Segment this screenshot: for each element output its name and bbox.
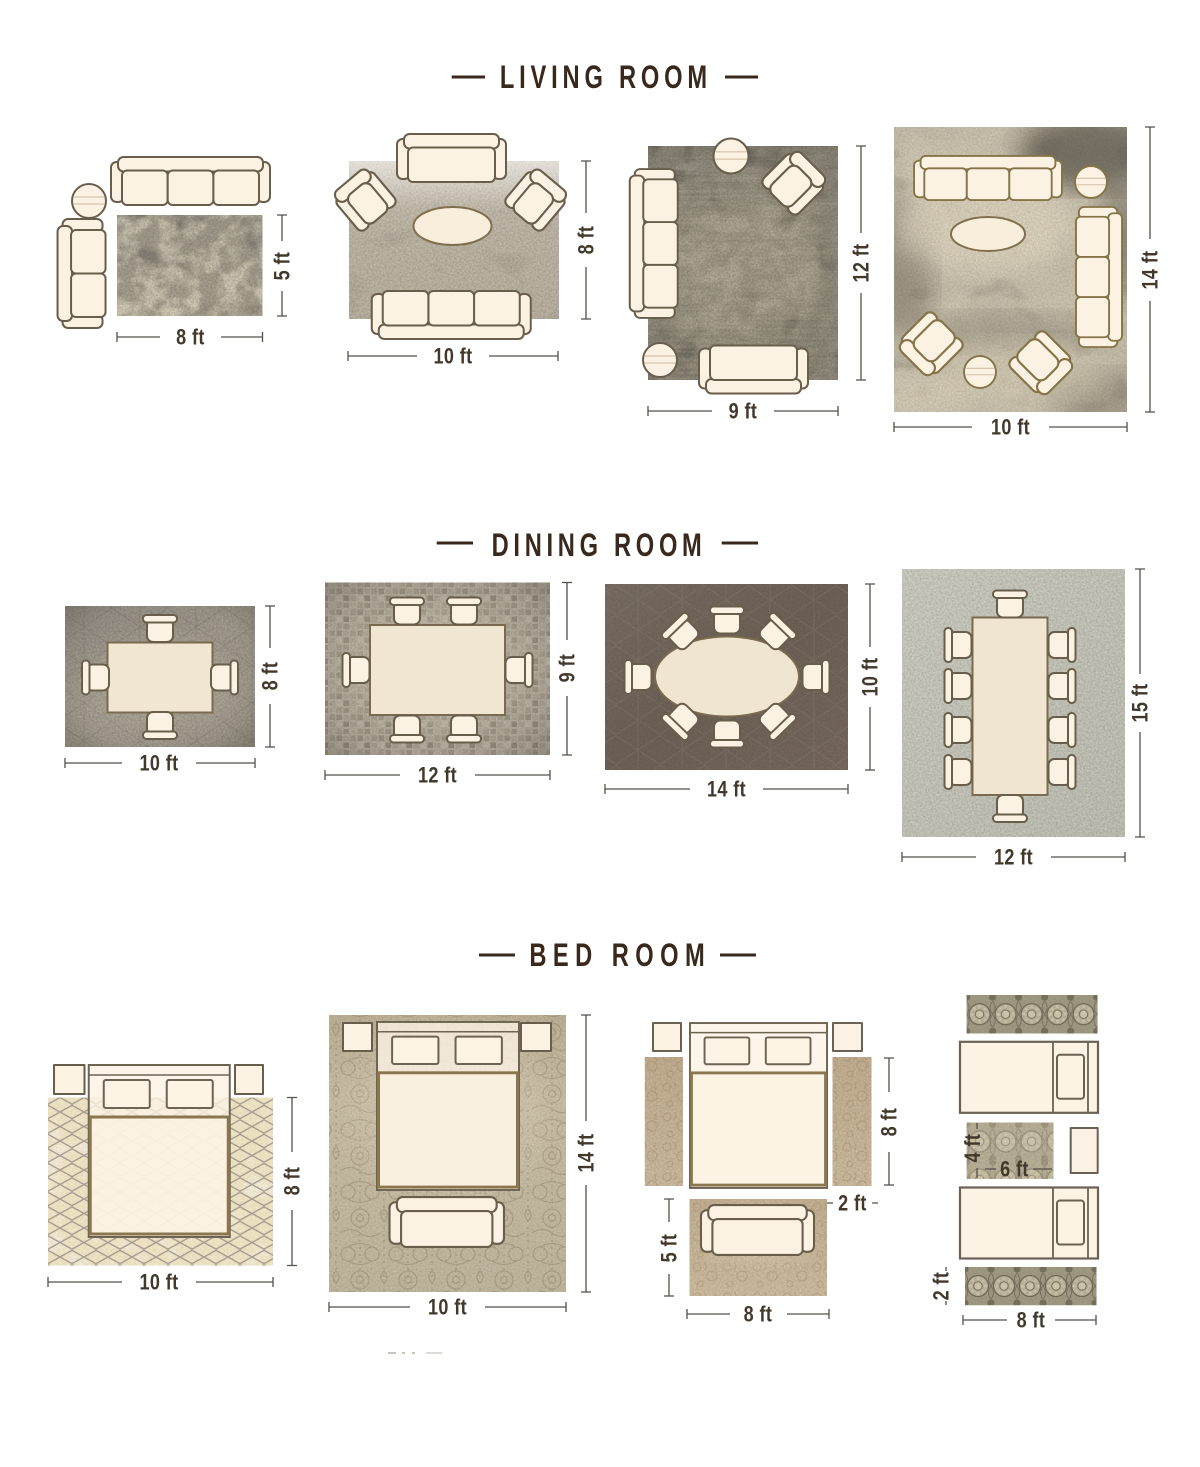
svg-text:15 ft: 15 ft [1129, 683, 1153, 722]
svg-text:12 ft: 12 ft [418, 764, 457, 788]
svg-text:14 ft: 14 ft [575, 1133, 599, 1172]
svg-text:10 ft: 10 ft [991, 416, 1030, 440]
svg-text:8 ft: 8 ft [575, 226, 599, 255]
svg-text:9 ft: 9 ft [729, 400, 758, 424]
svg-text:14 ft: 14 ft [707, 778, 746, 802]
svg-text:6 ft: 6 ft [1000, 1158, 1029, 1182]
svg-text:8 ft: 8 ft [259, 662, 283, 691]
svg-text:10 ft: 10 ft [139, 752, 178, 776]
svg-text:BED ROOM: BED ROOM [529, 938, 704, 973]
svg-text:8 ft: 8 ft [1017, 1309, 1046, 1333]
svg-text:12 ft: 12 ft [850, 243, 874, 282]
svg-text:12 ft: 12 ft [994, 846, 1033, 870]
svg-text:10 ft: 10 ft [428, 1296, 467, 1320]
svg-text:8 ft: 8 ft [744, 1303, 773, 1327]
svg-text:10 ft: 10 ft [139, 1271, 178, 1295]
svg-text:2 ft: 2 ft [838, 1192, 867, 1216]
svg-text:5 ft: 5 ft [658, 1234, 682, 1263]
svg-text:8 ft: 8 ft [878, 1108, 902, 1137]
svg-text:2 ft: 2 ft [930, 1272, 954, 1301]
svg-text:14 ft: 14 ft [1139, 250, 1163, 289]
svg-text:5 ft: 5 ft [271, 252, 295, 281]
svg-text:10 ft: 10 ft [433, 345, 472, 369]
svg-text:10 ft: 10 ft [859, 657, 883, 696]
svg-text:4 ft: 4 ft [961, 1134, 985, 1163]
svg-text:9 ft: 9 ft [556, 654, 580, 683]
svg-text:8 ft: 8 ft [281, 1167, 305, 1196]
svg-text:8 ft: 8 ft [176, 326, 205, 350]
